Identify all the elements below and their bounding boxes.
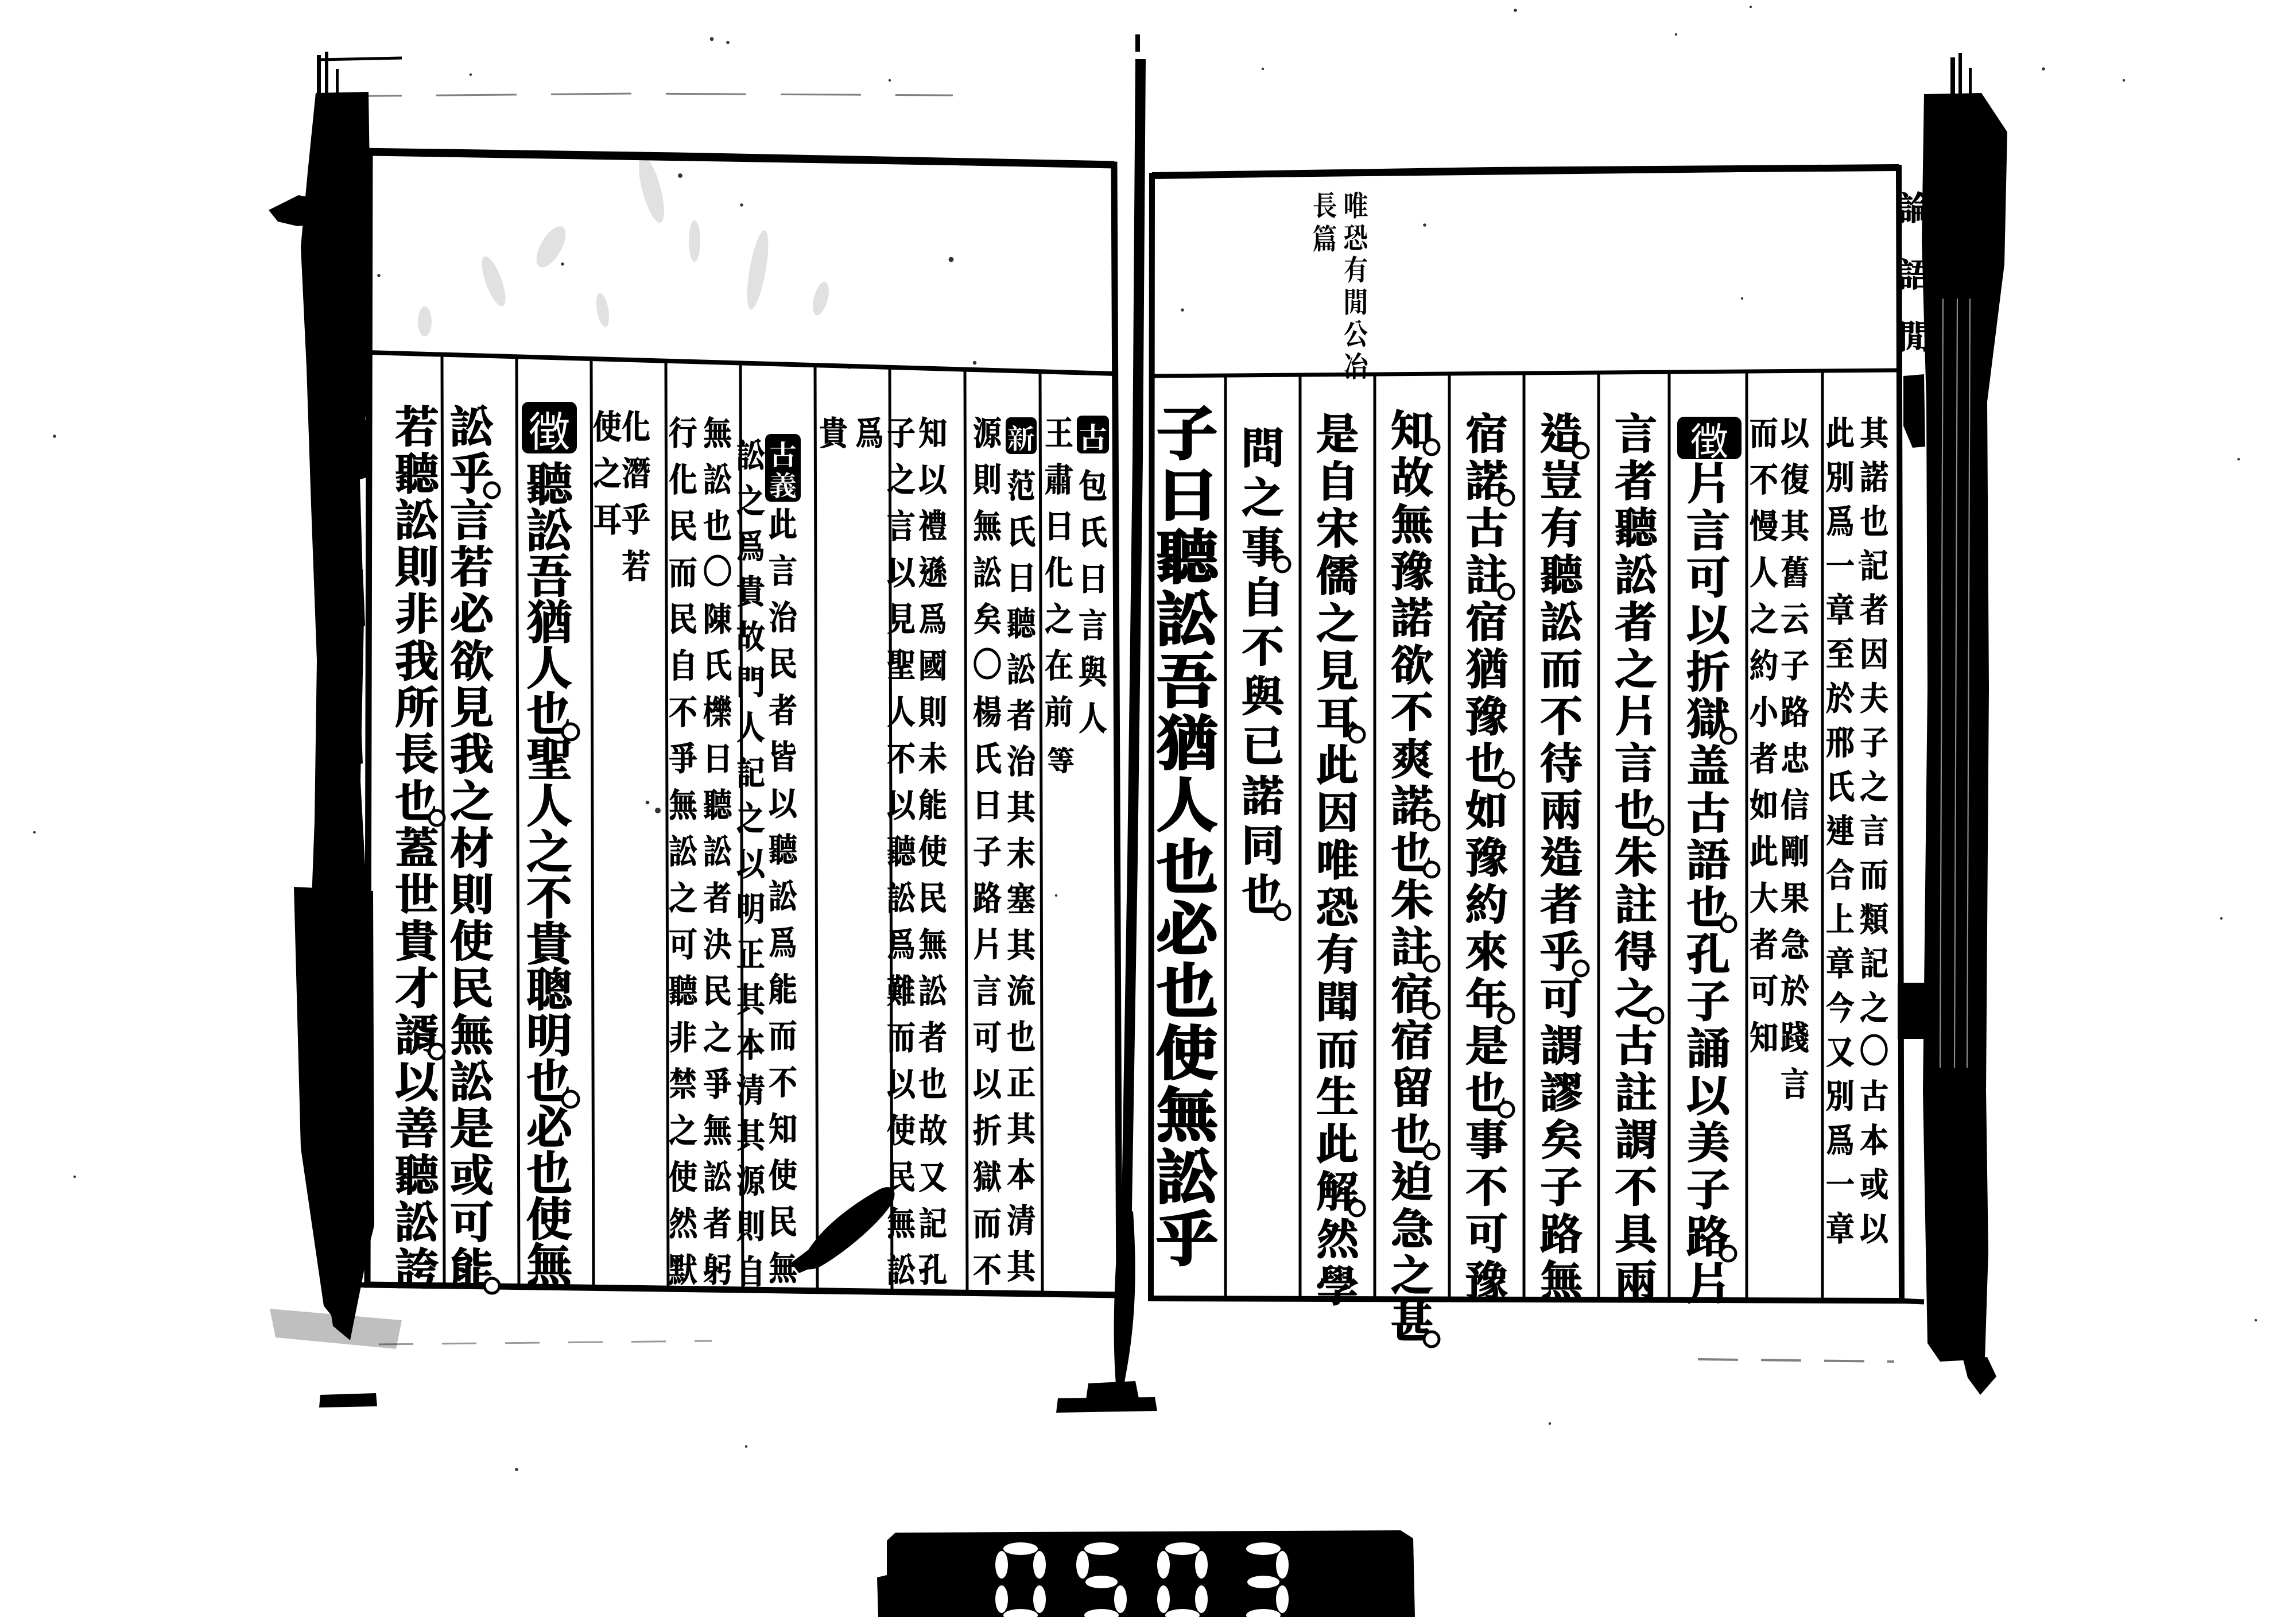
- svg-text:行: 行: [669, 408, 697, 455]
- svg-text:而: 而: [887, 1012, 916, 1060]
- svg-text:自: 自: [669, 640, 697, 688]
- svg-text:訟: 訟: [669, 826, 697, 874]
- svg-text:本: 本: [736, 1019, 765, 1067]
- svg-text:塞: 塞: [1007, 874, 1035, 921]
- svg-text:遜: 遜: [918, 547, 947, 595]
- svg-text:故: 故: [918, 1105, 947, 1153]
- svg-text:合: 合: [1826, 850, 1855, 897]
- svg-text:之: 之: [703, 1012, 732, 1060]
- svg-text:路: 路: [973, 873, 1002, 920]
- svg-text:正: 正: [1007, 1057, 1035, 1105]
- svg-text:范: 范: [1007, 460, 1035, 508]
- svg-text:記: 記: [1860, 938, 1888, 986]
- svg-text:乎: 乎: [622, 494, 650, 542]
- svg-text:而: 而: [1860, 850, 1888, 897]
- svg-text:於: 於: [1826, 673, 1855, 720]
- svg-text:源: 源: [973, 408, 1002, 455]
- svg-text:言: 言: [1079, 600, 1107, 647]
- svg-text:氏: 氏: [973, 733, 1002, 781]
- svg-text:至: 至: [1826, 629, 1855, 676]
- svg-text:治: 治: [769, 592, 797, 639]
- svg-text:貴: 貴: [819, 408, 848, 455]
- svg-text:以: 以: [887, 1058, 916, 1106]
- svg-text:又: 又: [918, 1151, 947, 1199]
- svg-text:曰: 曰: [703, 733, 732, 781]
- svg-text:者: 者: [1860, 584, 1888, 632]
- svg-text:爲: 爲: [1826, 1115, 1855, 1162]
- svg-text:治: 治: [1007, 736, 1035, 784]
- svg-text:爲: 爲: [887, 919, 916, 967]
- svg-text:云: 云: [1781, 594, 1809, 641]
- svg-text:訟: 訟: [703, 826, 732, 874]
- svg-text:折: 折: [973, 1105, 1002, 1153]
- svg-text:聽: 聽: [769, 824, 797, 872]
- svg-text:之: 之: [1860, 761, 1888, 809]
- svg-text:而: 而: [1750, 408, 1778, 455]
- svg-text:因: 因: [1860, 629, 1888, 676]
- svg-text:章: 章: [1826, 1203, 1855, 1251]
- svg-text:人: 人: [1750, 547, 1778, 595]
- svg-text:無: 無: [769, 1243, 797, 1290]
- svg-text:此: 此: [1826, 408, 1855, 455]
- svg-text:言: 言: [769, 545, 797, 593]
- svg-text:之: 之: [887, 454, 916, 502]
- svg-text:兩: 兩: [1615, 1248, 1657, 1309]
- svg-text:明: 明: [736, 883, 765, 931]
- svg-text:曰: 曰: [1007, 552, 1035, 600]
- svg-text:民: 民: [769, 1196, 797, 1244]
- svg-text:躬: 躬: [703, 1244, 732, 1292]
- svg-text:徴: 徴: [1690, 412, 1728, 466]
- svg-text:可: 可: [973, 1012, 1002, 1060]
- svg-text:以: 以: [887, 547, 916, 595]
- svg-text:非: 非: [669, 1012, 697, 1060]
- svg-text:訟: 訟: [887, 1244, 916, 1292]
- svg-text:爲: 爲: [769, 917, 797, 965]
- svg-text:訟: 訟: [769, 871, 797, 918]
- svg-text:冶: 冶: [1344, 344, 1368, 385]
- svg-text:能: 能: [918, 780, 947, 827]
- svg-text:孔: 孔: [918, 1244, 947, 1292]
- svg-text:篇: 篇: [1313, 216, 1337, 258]
- svg-text:一: 一: [1826, 540, 1855, 588]
- svg-text:訟: 訟: [703, 1151, 732, 1199]
- svg-text:聽: 聽: [1007, 598, 1035, 646]
- svg-text:人: 人: [1079, 693, 1107, 740]
- svg-text:其: 其: [736, 974, 765, 1022]
- svg-text:乎: 乎: [1156, 1193, 1217, 1277]
- svg-text:無: 無: [526, 1229, 572, 1295]
- svg-text:默: 默: [669, 1244, 697, 1292]
- svg-text:肅: 肅: [1045, 454, 1073, 502]
- svg-text:之: 之: [593, 448, 622, 495]
- svg-text:其: 其: [1007, 782, 1035, 829]
- svg-text:使: 使: [918, 826, 947, 874]
- svg-text:舊: 舊: [1781, 547, 1809, 595]
- svg-text:然: 然: [669, 1198, 697, 1246]
- svg-text:前: 前: [1045, 687, 1073, 734]
- svg-text:也: 也: [1007, 1011, 1035, 1059]
- svg-text:無: 無: [703, 1105, 732, 1153]
- svg-text:此: 此: [1750, 826, 1778, 874]
- svg-text:爲: 爲: [855, 408, 884, 455]
- svg-text:者: 者: [703, 1198, 732, 1246]
- svg-text:古: 古: [1860, 1071, 1888, 1118]
- svg-text:可: 可: [1750, 965, 1778, 1013]
- svg-text:氏: 氏: [1826, 761, 1855, 809]
- svg-text:而: 而: [973, 1198, 1002, 1246]
- svg-text:之: 之: [1860, 982, 1888, 1030]
- svg-text:民: 民: [669, 501, 697, 548]
- svg-text:無: 無: [1540, 1248, 1583, 1309]
- svg-text:知: 知: [1750, 1012, 1778, 1060]
- svg-text:本: 本: [1007, 1149, 1035, 1197]
- svg-text:耳: 耳: [593, 494, 622, 542]
- svg-text:信: 信: [1781, 780, 1809, 827]
- svg-text:其: 其: [1860, 408, 1888, 455]
- svg-text:連: 連: [1826, 805, 1855, 853]
- svg-text:禁: 禁: [669, 1058, 697, 1106]
- svg-text:訟: 訟: [973, 547, 1002, 595]
- svg-text:不: 不: [1750, 454, 1778, 502]
- svg-text:又: 又: [1826, 1026, 1855, 1074]
- svg-text:櫟: 櫟: [703, 687, 732, 734]
- svg-text:獄: 獄: [973, 1151, 1002, 1199]
- svg-text:氏: 氏: [1079, 507, 1107, 554]
- svg-text:以: 以: [736, 838, 765, 886]
- svg-text:其: 其: [1007, 920, 1035, 967]
- svg-text:諾: 諾: [1860, 452, 1888, 499]
- svg-text:不: 不: [769, 1057, 797, 1104]
- svg-text:正: 正: [736, 929, 765, 976]
- svg-text:知: 知: [918, 408, 947, 455]
- svg-text:也: 也: [703, 501, 732, 548]
- svg-text:本: 本: [1860, 1115, 1888, 1162]
- svg-text:以: 以: [1860, 1203, 1888, 1251]
- svg-text:古: 古: [1079, 415, 1107, 456]
- svg-text:此: 此: [769, 499, 797, 546]
- svg-text:無: 無: [703, 408, 732, 455]
- svg-text:上: 上: [1826, 894, 1855, 941]
- svg-text:則: 則: [736, 1201, 765, 1248]
- svg-text:決: 決: [703, 919, 732, 967]
- svg-text:剛: 剛: [1781, 826, 1809, 874]
- svg-text:聽: 聽: [887, 826, 916, 874]
- svg-text:爲: 爲: [736, 521, 765, 568]
- svg-text:曰: 曰: [1045, 501, 1073, 548]
- svg-text:以: 以: [769, 778, 797, 825]
- svg-text:清: 清: [736, 1065, 765, 1112]
- svg-text:爭: 爭: [703, 1058, 732, 1106]
- svg-text:類: 類: [1860, 894, 1888, 941]
- svg-text:楊: 楊: [973, 687, 1002, 734]
- svg-text:氏: 氏: [703, 640, 732, 688]
- svg-text:使: 使: [593, 401, 622, 449]
- svg-text:源: 源: [736, 1155, 765, 1203]
- svg-text:其: 其: [736, 1110, 765, 1158]
- svg-text:民: 民: [703, 965, 732, 1013]
- svg-text:能: 能: [769, 964, 797, 1011]
- svg-text:在: 在: [1045, 640, 1073, 688]
- svg-text:以: 以: [1781, 408, 1809, 455]
- svg-text:無: 無: [887, 1198, 916, 1246]
- svg-text:其: 其: [1007, 1103, 1035, 1151]
- svg-text:民: 民: [769, 638, 797, 686]
- svg-text:爲: 爲: [1826, 496, 1855, 544]
- svg-text:氏: 氏: [1007, 506, 1035, 554]
- svg-text:也: 也: [1860, 496, 1888, 544]
- svg-text:人: 人: [736, 702, 765, 750]
- svg-text:之: 之: [736, 793, 765, 840]
- svg-text:聽: 聽: [703, 780, 732, 827]
- svg-text:別: 別: [1826, 452, 1855, 499]
- svg-text:無: 無: [669, 780, 697, 827]
- svg-text:章: 章: [1826, 584, 1855, 632]
- svg-text:如: 如: [1750, 780, 1778, 827]
- svg-text:豫: 豫: [1465, 1248, 1508, 1309]
- svg-text:化: 化: [669, 454, 697, 502]
- svg-text:者: 者: [918, 1012, 947, 1060]
- svg-text:之: 之: [736, 475, 765, 523]
- svg-text:一: 一: [1826, 1159, 1855, 1207]
- svg-text:約: 約: [1750, 640, 1778, 688]
- svg-text:夫: 夫: [1860, 673, 1888, 720]
- svg-text:無: 無: [973, 501, 1002, 548]
- svg-text:可: 可: [669, 919, 697, 967]
- svg-text:民: 民: [669, 594, 697, 641]
- svg-text:記: 記: [736, 747, 765, 795]
- svg-text:國: 國: [918, 640, 947, 688]
- svg-text:子: 子: [1781, 640, 1809, 688]
- svg-text:爭: 爭: [669, 733, 697, 781]
- svg-text:大: 大: [1750, 873, 1778, 920]
- svg-text:義: 義: [769, 464, 797, 504]
- svg-text:使: 使: [669, 1151, 697, 1199]
- svg-text:聽: 聽: [669, 965, 697, 1013]
- svg-text:自: 自: [736, 1246, 765, 1294]
- svg-text:邢: 邢: [1826, 717, 1855, 765]
- svg-text:曰: 曰: [973, 780, 1002, 827]
- svg-text:故: 故: [736, 611, 765, 659]
- svg-text:而: 而: [769, 1010, 797, 1058]
- svg-text:者: 者: [1007, 690, 1035, 738]
- svg-text:記: 記: [918, 1198, 947, 1246]
- svg-text:民: 民: [918, 873, 947, 920]
- svg-text:言: 言: [887, 501, 916, 548]
- svg-text:於: 於: [1781, 965, 1809, 1013]
- svg-text:訟: 訟: [703, 454, 732, 502]
- svg-text:化: 化: [1045, 547, 1073, 595]
- svg-text:者: 者: [1750, 733, 1778, 781]
- svg-text:爲: 爲: [918, 594, 947, 641]
- svg-text:則: 則: [918, 687, 947, 734]
- svg-text:無: 無: [918, 919, 947, 967]
- svg-text:聖: 聖: [887, 640, 916, 688]
- svg-text:王: 王: [1045, 408, 1073, 455]
- svg-text:以: 以: [918, 454, 947, 502]
- svg-text:包: 包: [1079, 460, 1107, 508]
- svg-text:潛: 潛: [622, 448, 650, 495]
- svg-text:復: 復: [1781, 454, 1809, 502]
- svg-text:者: 者: [703, 873, 732, 920]
- svg-text:末: 末: [1007, 828, 1035, 875]
- svg-text:別: 別: [1826, 1071, 1855, 1118]
- svg-text:訟: 訟: [736, 430, 765, 478]
- svg-text:其: 其: [1781, 501, 1809, 548]
- svg-text:使: 使: [887, 1105, 916, 1153]
- svg-text:不: 不: [887, 733, 916, 781]
- svg-text:新: 新: [1007, 417, 1035, 457]
- svg-text:知: 知: [769, 1103, 797, 1151]
- svg-text:則: 則: [973, 454, 1002, 502]
- svg-text:慢: 慢: [1750, 501, 1778, 548]
- svg-text:忠: 忠: [1781, 733, 1809, 781]
- svg-text:見: 見: [887, 594, 916, 641]
- svg-text:皆: 皆: [769, 731, 797, 779]
- svg-text:以: 以: [887, 780, 916, 827]
- svg-text:訟: 訟: [887, 873, 916, 920]
- svg-text:路: 路: [1781, 687, 1809, 734]
- svg-text:言: 言: [1860, 805, 1888, 853]
- svg-text:難: 難: [887, 965, 916, 1013]
- svg-text:學: 學: [1316, 1253, 1359, 1314]
- svg-text:子: 子: [1860, 717, 1888, 765]
- svg-text:訟: 訟: [918, 965, 947, 1013]
- svg-text:貴: 貴: [736, 566, 765, 614]
- svg-text:未: 未: [918, 733, 947, 781]
- svg-text:片: 片: [973, 919, 1002, 967]
- svg-text:記: 記: [1860, 540, 1888, 588]
- svg-text:而: 而: [669, 547, 697, 595]
- svg-text:不: 不: [973, 1244, 1002, 1292]
- svg-text:踐: 踐: [1781, 1012, 1809, 1060]
- svg-text:章: 章: [1826, 938, 1855, 986]
- svg-text:今: 今: [1826, 982, 1855, 1030]
- svg-text:言: 言: [1781, 1058, 1809, 1106]
- svg-text:小: 小: [1750, 687, 1778, 734]
- svg-text:急: 急: [1781, 919, 1809, 967]
- svg-text:使: 使: [769, 1150, 797, 1197]
- svg-text:人: 人: [887, 687, 916, 734]
- svg-text:子: 子: [887, 408, 916, 455]
- svg-text:果: 果: [1781, 873, 1809, 920]
- svg-text:徴: 徴: [529, 399, 570, 459]
- svg-text:言: 言: [973, 965, 1002, 1013]
- svg-text:等: 等: [1047, 739, 1075, 779]
- svg-text:誇: 誇: [395, 1235, 439, 1297]
- svg-text:若: 若: [622, 541, 650, 588]
- svg-text:門: 門: [736, 657, 765, 704]
- svg-text:之: 之: [1750, 594, 1778, 641]
- svg-text:或: 或: [1860, 1159, 1888, 1207]
- svg-text:禮: 禮: [918, 501, 947, 548]
- svg-text:也: 也: [918, 1058, 947, 1106]
- svg-text:其: 其: [1007, 1241, 1035, 1289]
- svg-text:以: 以: [973, 1058, 1002, 1106]
- svg-text:之: 之: [669, 1105, 697, 1153]
- svg-text:陳: 陳: [703, 594, 732, 641]
- svg-text:之: 之: [669, 873, 697, 920]
- svg-text:不: 不: [669, 687, 697, 734]
- svg-text:者: 者: [1750, 919, 1778, 967]
- svg-text:流: 流: [1007, 965, 1035, 1013]
- svg-text:者: 者: [769, 685, 797, 732]
- svg-text:矣: 矣: [973, 594, 1002, 641]
- svg-text:清: 清: [1007, 1195, 1035, 1243]
- svg-text:化: 化: [622, 401, 650, 449]
- svg-text:子: 子: [973, 826, 1002, 874]
- svg-text:曰: 曰: [1079, 553, 1107, 601]
- svg-text:訟: 訟: [1007, 644, 1035, 692]
- svg-text:之: 之: [1045, 594, 1073, 641]
- svg-text:與: 與: [1079, 646, 1107, 694]
